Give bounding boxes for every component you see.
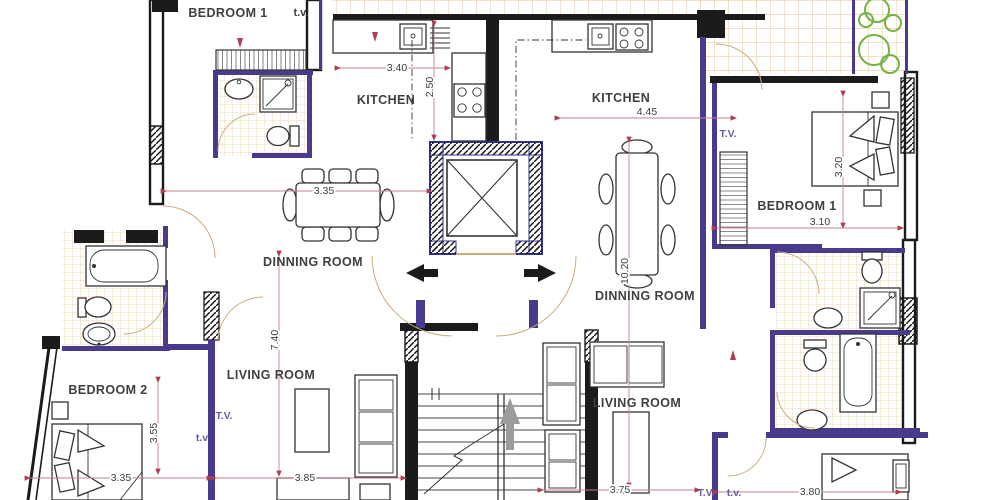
nightstand bbox=[872, 92, 889, 108]
left-outer-wall bbox=[150, 0, 163, 204]
coffee-table bbox=[295, 389, 329, 452]
room-label-living-right: LIVING ROOM bbox=[593, 396, 681, 410]
dim-3-10: 3.10 bbox=[810, 216, 831, 228]
bath-left-jamb bbox=[126, 230, 158, 243]
room-label-kitchen-right: KITCHEN bbox=[592, 91, 650, 105]
right-balcony-tiles bbox=[700, 0, 908, 74]
kitchen-right bbox=[516, 20, 652, 140]
tv-label-bottom-1: T.V. bbox=[697, 487, 714, 499]
wall-liner bbox=[319, 0, 322, 70]
sofa bbox=[545, 430, 580, 492]
coffee-table bbox=[613, 412, 649, 493]
dim-3-85: 3.85 bbox=[295, 472, 316, 484]
dim-3-40: 3.40 bbox=[387, 62, 408, 74]
right-wall-hatch bbox=[899, 298, 917, 344]
toilet bbox=[267, 127, 289, 146]
tv-label-left-2: t.v bbox=[196, 432, 208, 444]
room-label-living-left: LIVING ROOM bbox=[227, 368, 315, 382]
stair-left-wall-hatch bbox=[405, 330, 418, 362]
dim-3-75: 3.75 bbox=[610, 484, 631, 496]
bath-left-jamb bbox=[74, 230, 104, 243]
side-table bbox=[360, 484, 390, 500]
door-arc bbox=[218, 297, 263, 342]
room-label-dinning-right: DINNING ROOM bbox=[595, 289, 695, 303]
toilet bbox=[862, 259, 882, 283]
bedroom1-right-furniture bbox=[716, 44, 914, 245]
stair-up-arrow-icon bbox=[500, 398, 520, 424]
stair-break-line bbox=[424, 424, 504, 494]
wall-stub bbox=[152, 0, 178, 12]
right-unit-hall-wall bbox=[700, 37, 706, 329]
dining-left bbox=[283, 169, 394, 241]
cabinet-dashline bbox=[516, 40, 586, 140]
toilet bbox=[85, 297, 111, 317]
door-arc bbox=[728, 438, 766, 476]
dim-3-35-bottom: 3.35 bbox=[111, 472, 132, 484]
room-label-bedroom1-top: BEDROOM 1 bbox=[188, 6, 267, 20]
sink bbox=[797, 410, 827, 430]
entry-door-jamb bbox=[416, 300, 425, 328]
chair bbox=[356, 227, 378, 241]
bathtub bbox=[86, 246, 166, 286]
tv-label-right-top: T.V. bbox=[719, 128, 736, 140]
arrow-left-icon bbox=[406, 264, 438, 282]
sofa bbox=[543, 343, 580, 425]
chair bbox=[329, 169, 351, 183]
stair-left-wall bbox=[405, 362, 418, 500]
arrow-right-icon bbox=[524, 264, 556, 282]
dim-3-80: 3.80 bbox=[800, 486, 821, 498]
bedroom1-right-top-wall bbox=[710, 76, 878, 83]
sofa bbox=[355, 375, 397, 477]
entry-door-jamb bbox=[529, 300, 538, 328]
wardrobe bbox=[216, 50, 306, 70]
tv-label-top: t.v. bbox=[293, 7, 308, 19]
dim-10-20: 10.20 bbox=[619, 258, 631, 284]
tv-label-bottom-2: t.v. bbox=[727, 487, 741, 499]
floor-plan-drawing: BEDROOM 1 t.v. KITCHEN KITCHEN DINNING R… bbox=[0, 0, 1000, 500]
nightstand bbox=[864, 190, 881, 206]
chair bbox=[356, 169, 378, 183]
wall-tick bbox=[237, 38, 243, 48]
dining-right bbox=[599, 140, 675, 288]
dim-3-20: 3.20 bbox=[833, 157, 845, 178]
dining-table bbox=[616, 153, 658, 275]
wardrobe bbox=[720, 152, 747, 245]
toilet-tank bbox=[290, 126, 299, 146]
sink bbox=[225, 79, 253, 99]
chair bbox=[283, 189, 297, 221]
bedroom1-kitchen-wall bbox=[307, 0, 321, 70]
chair bbox=[599, 225, 613, 255]
left-wall-hatch bbox=[150, 126, 163, 164]
room-label-bedroom2: BEDROOM 2 bbox=[68, 383, 147, 397]
dining-table bbox=[296, 183, 380, 227]
chair bbox=[622, 140, 652, 154]
room-label-bedroom1-right: BEDROOM 1 bbox=[757, 199, 836, 213]
nightstand bbox=[893, 460, 909, 492]
door-arc-left-hall bbox=[163, 206, 215, 258]
dim-3-35-top: 3.35 bbox=[314, 185, 335, 197]
chair bbox=[302, 227, 324, 241]
toilet bbox=[804, 349, 826, 371]
room-label-dinning-left: DINNING ROOM bbox=[263, 255, 363, 269]
floor-plan-page: BEDROOM 1 t.v. KITCHEN KITCHEN DINNING R… bbox=[0, 0, 1000, 500]
stair-divider bbox=[498, 394, 504, 500]
chair bbox=[329, 227, 351, 241]
dim-2-50: 2.50 bbox=[424, 77, 436, 98]
bathroom-right-lower-tiles bbox=[775, 336, 903, 428]
chair bbox=[661, 225, 675, 255]
chair bbox=[599, 174, 613, 204]
dim-4-45: 4.45 bbox=[637, 106, 658, 118]
hall-wall-hatch bbox=[204, 292, 219, 340]
toilet-tank bbox=[804, 340, 826, 348]
chair bbox=[380, 189, 394, 221]
wall-hatch bbox=[901, 78, 914, 153]
dim-3-55: 3.55 bbox=[148, 423, 160, 444]
wall-tick bbox=[730, 350, 736, 360]
kitchen-divider-wall bbox=[486, 14, 499, 144]
column bbox=[697, 10, 725, 38]
chair bbox=[302, 169, 324, 183]
stair-up-arrow-stem bbox=[506, 424, 514, 450]
room-label-kitchen-left: KITCHEN bbox=[357, 93, 415, 107]
tv-wall bbox=[208, 340, 215, 500]
living-right-furniture bbox=[543, 342, 664, 493]
elevator bbox=[372, 142, 576, 336]
sink bbox=[814, 308, 842, 328]
tv-label-left-1: T.V. bbox=[215, 410, 232, 422]
dim-7-40: 7.40 bbox=[269, 330, 281, 351]
chair bbox=[661, 174, 675, 204]
kitchen-left bbox=[333, 20, 486, 141]
nightstand bbox=[52, 402, 68, 419]
